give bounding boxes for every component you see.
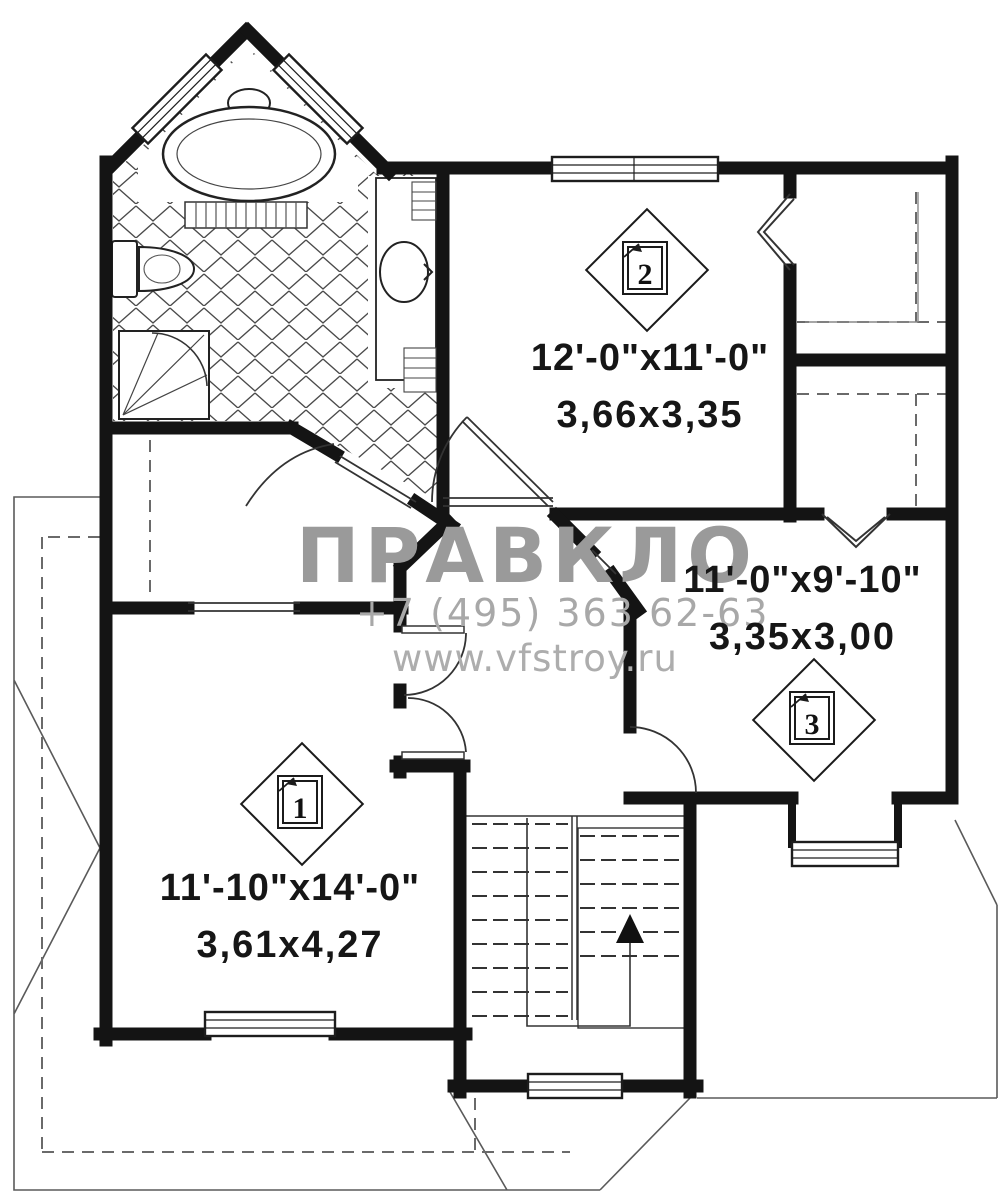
bedroom3-metric-dimensions: 3,35x3,00 xyxy=(615,609,990,666)
hall-opening-lines xyxy=(188,498,553,611)
bedroom3-imperial-dimensions: 11'-0"x9'-10" xyxy=(615,552,990,609)
bedroom1-door-leaf xyxy=(402,752,464,759)
bedroom1-metric-dimensions: 3,61x4,27 xyxy=(90,917,490,974)
room-number: 2 xyxy=(638,260,653,290)
room-marker-2: 2 xyxy=(603,226,687,310)
bedroom2-window xyxy=(552,157,718,181)
shower xyxy=(119,331,209,419)
room-marker-1: 1 xyxy=(258,760,342,844)
bathroom-door-arc xyxy=(246,444,334,506)
marker-box: 2 xyxy=(622,241,668,295)
stairwell-window xyxy=(528,1074,622,1098)
bedroom3-bay-window xyxy=(792,842,898,866)
marker-box: 1 xyxy=(277,775,323,829)
room-number: 1 xyxy=(293,794,308,824)
bedroom1-door-arc xyxy=(408,698,466,752)
bedroom3-door-arc xyxy=(630,727,696,793)
bedroom3-label: 11'-0"x9'-10" 3,35x3,00 xyxy=(615,552,990,666)
bedroom1-label: 11'-10"x14'-0" 3,61x4,27 xyxy=(90,860,490,974)
closet-door-leaf xyxy=(402,626,464,633)
bifold-door-closet2 xyxy=(758,194,794,270)
window-bay-walls xyxy=(792,798,898,848)
room-number: 3 xyxy=(805,710,820,740)
flag-icon xyxy=(276,773,298,793)
bedroom1-imperial-dimensions: 11'-10"x14'-0" xyxy=(90,860,490,917)
bedroom1-window xyxy=(205,1012,335,1036)
bedroom2-imperial-dimensions: 12'-0"x11'-0" xyxy=(450,330,850,387)
up-arrow-icon xyxy=(616,914,644,943)
marker-box: 3 xyxy=(789,691,835,745)
room-marker-3: 3 xyxy=(770,676,854,760)
bedroom2-metric-dimensions: 3,66x3,35 xyxy=(450,387,850,444)
bifold-door-closet3 xyxy=(822,514,890,547)
closet-door-arc xyxy=(404,633,466,695)
staircase xyxy=(466,816,686,1028)
flag-icon xyxy=(788,689,810,709)
bedroom2-label: 12'-0"x11'-0" 3,66x3,35 xyxy=(450,330,850,444)
closet-shelf-lines xyxy=(805,192,918,322)
floor-plan-page: ПРАВ КЛО +7 (495) 363 62-63 www.vfstroy.… xyxy=(0,0,1000,1198)
flag-icon xyxy=(621,239,643,259)
vanity-sink xyxy=(368,176,438,392)
